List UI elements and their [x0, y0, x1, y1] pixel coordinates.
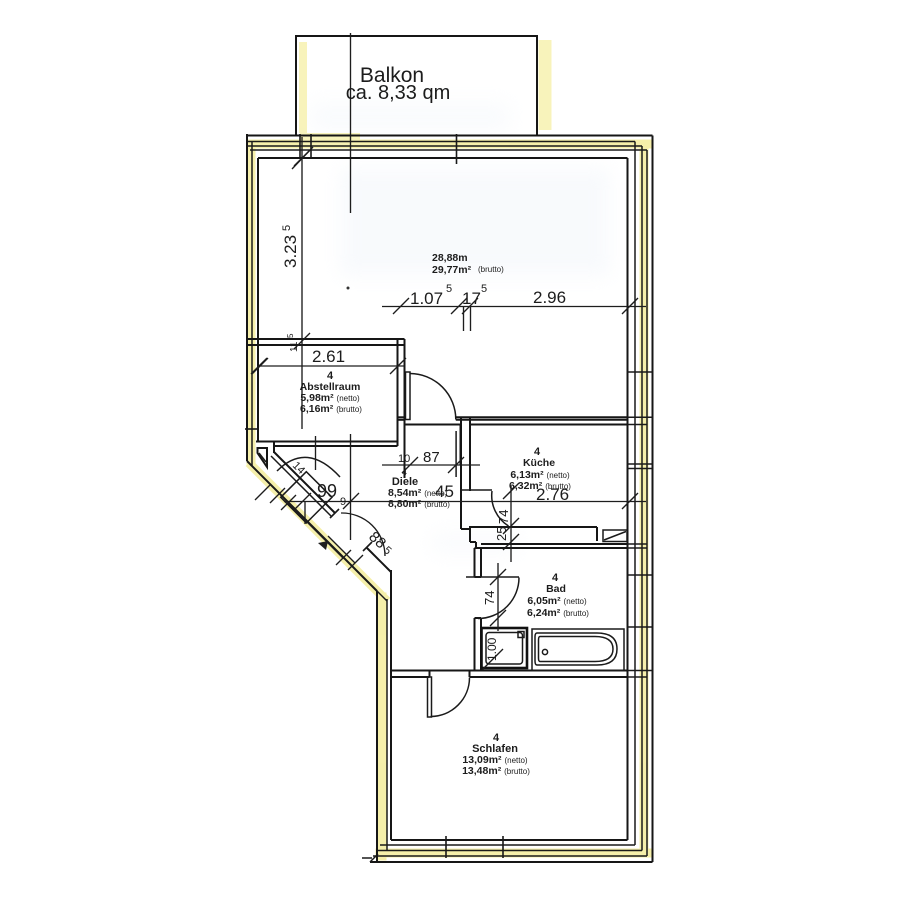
svg-text:2.61: 2.61: [312, 347, 345, 366]
svg-text:ca. 8,33 qm: ca. 8,33 qm: [346, 82, 451, 104]
svg-text:10: 10: [398, 453, 410, 465]
svg-text:5: 5: [481, 283, 487, 295]
svg-text:2.76: 2.76: [536, 485, 569, 504]
svg-text:29,77m²: 29,77m²: [432, 264, 472, 276]
svg-text:6,24m² (brutto): 6,24m² (brutto): [527, 607, 589, 619]
svg-text:25: 25: [494, 527, 509, 541]
svg-text:5: 5: [281, 225, 293, 231]
svg-text:Küche: Küche: [523, 457, 555, 469]
svg-text:5: 5: [446, 283, 452, 295]
svg-text:3.23: 3.23: [281, 235, 300, 268]
svg-text:5: 5: [286, 333, 295, 338]
svg-text:99: 99: [317, 481, 337, 501]
svg-text:28,88m: 28,88m: [432, 252, 468, 264]
svg-text:11: 11: [289, 341, 300, 352]
svg-text:87: 87: [423, 449, 440, 466]
svg-text:74: 74: [482, 591, 497, 605]
svg-text:Bad: Bad: [546, 583, 566, 595]
svg-text:9: 9: [340, 496, 346, 508]
svg-text:1.00: 1.00: [485, 637, 499, 661]
svg-text:13,48m² (brutto): 13,48m² (brutto): [462, 765, 530, 777]
svg-text:74: 74: [496, 510, 511, 524]
svg-text:1.07: 1.07: [410, 289, 443, 308]
svg-text:6,05m² (netto): 6,05m² (netto): [527, 595, 587, 607]
svg-text:6,16m² (brutto): 6,16m² (brutto): [300, 403, 362, 415]
svg-text:(brutto): (brutto): [478, 265, 504, 274]
svg-text:2.96: 2.96: [533, 288, 566, 307]
svg-text:45: 45: [435, 482, 454, 501]
svg-text:17: 17: [462, 289, 481, 308]
